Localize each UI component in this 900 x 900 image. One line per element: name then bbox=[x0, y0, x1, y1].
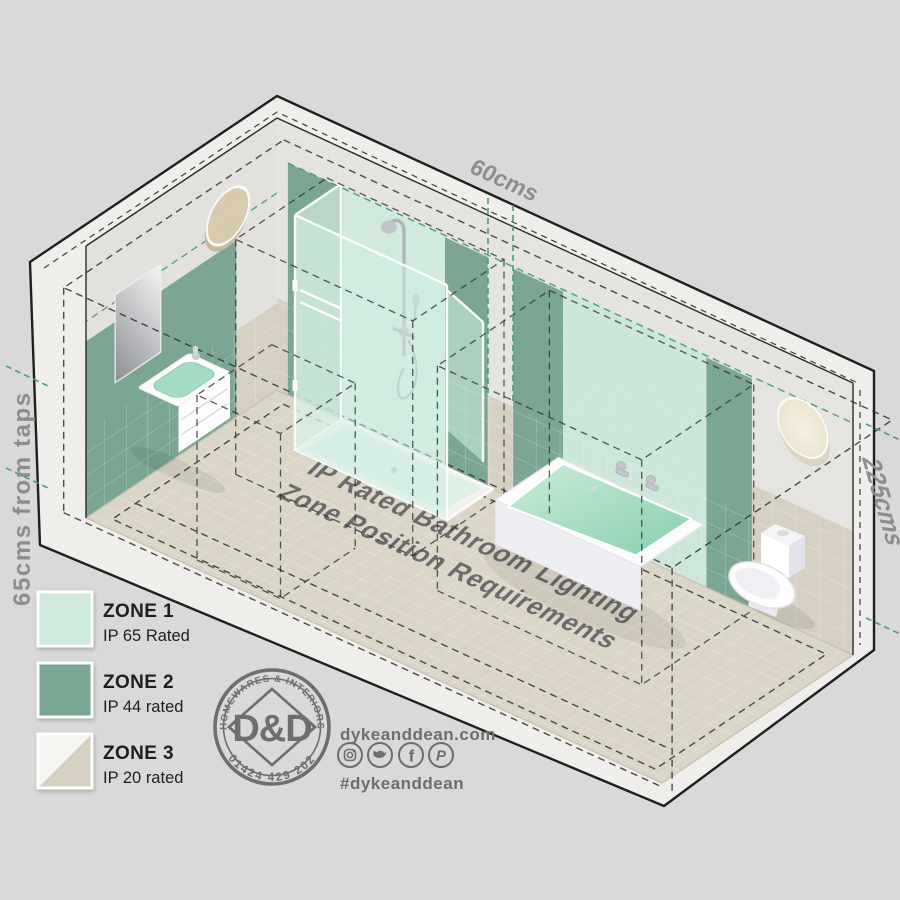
hashtag-text: #dykeanddean bbox=[340, 774, 464, 793]
hinge-icon bbox=[293, 280, 298, 291]
hinge-icon bbox=[293, 380, 298, 391]
bathroom-lighting-zones-infographic: IP Rated Bathroom Lighting Zone Position… bbox=[0, 0, 900, 900]
zone1-label: ZONE 1 bbox=[103, 601, 174, 622]
zone3-label: ZONE 3 bbox=[103, 743, 174, 764]
zone3-rating: IP 20 rated bbox=[103, 769, 183, 787]
zone1-rating: IP 65 Rated bbox=[103, 627, 190, 645]
legend-item-zone1: ZONE 1 IP 65 Rated bbox=[38, 592, 190, 646]
zone2-swatch bbox=[38, 663, 92, 717]
logo-monogram: D&D bbox=[232, 708, 311, 750]
bath-overflow bbox=[591, 486, 597, 492]
scene-canvas: IP Rated Bathroom Lighting Zone Position… bbox=[0, 0, 900, 900]
zone2-label: ZONE 2 bbox=[103, 672, 174, 693]
svg-text:f: f bbox=[409, 747, 415, 766]
shower-head bbox=[381, 221, 397, 234]
legend-item-zone2: ZONE 2 IP 44 rated bbox=[38, 663, 183, 717]
zone1-swatch bbox=[38, 592, 92, 646]
dimension-left-label: 65cms from taps bbox=[9, 391, 36, 606]
website-text: dykeanddean.com bbox=[340, 725, 496, 744]
legend: ZONE 1 IP 65 Rated ZONE 2 IP 44 rated ZO… bbox=[38, 592, 190, 788]
basin-tap-neck bbox=[193, 346, 198, 356]
flush-button bbox=[777, 530, 789, 536]
zone2-rating: IP 44 rated bbox=[103, 698, 183, 716]
svg-text:P: P bbox=[436, 748, 447, 765]
legend-item-zone3: ZONE 3 IP 20 rated bbox=[38, 734, 183, 788]
